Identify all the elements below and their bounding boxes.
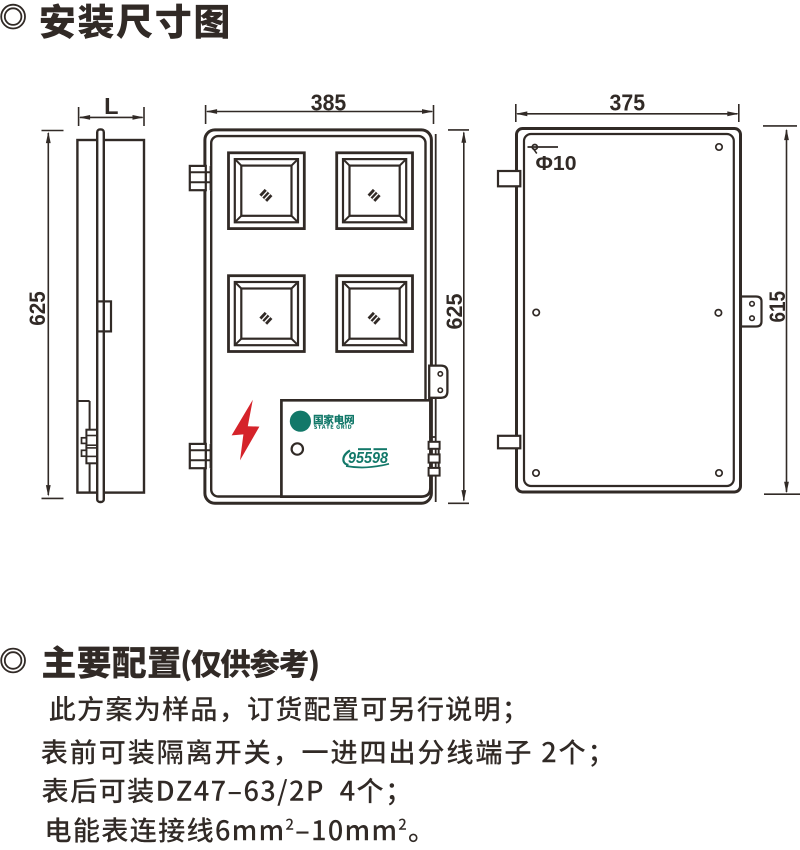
svg-text:385: 385 bbox=[311, 89, 347, 115]
svg-text:95598: 95598 bbox=[348, 450, 388, 467]
svg-text:615: 615 bbox=[765, 291, 790, 323]
svg-text:L: L bbox=[104, 93, 118, 119]
svg-text:625: 625 bbox=[442, 294, 467, 330]
svg-text:Φ10: Φ10 bbox=[536, 152, 577, 175]
svg-text:625: 625 bbox=[25, 291, 50, 326]
svg-text:375: 375 bbox=[610, 90, 646, 116]
